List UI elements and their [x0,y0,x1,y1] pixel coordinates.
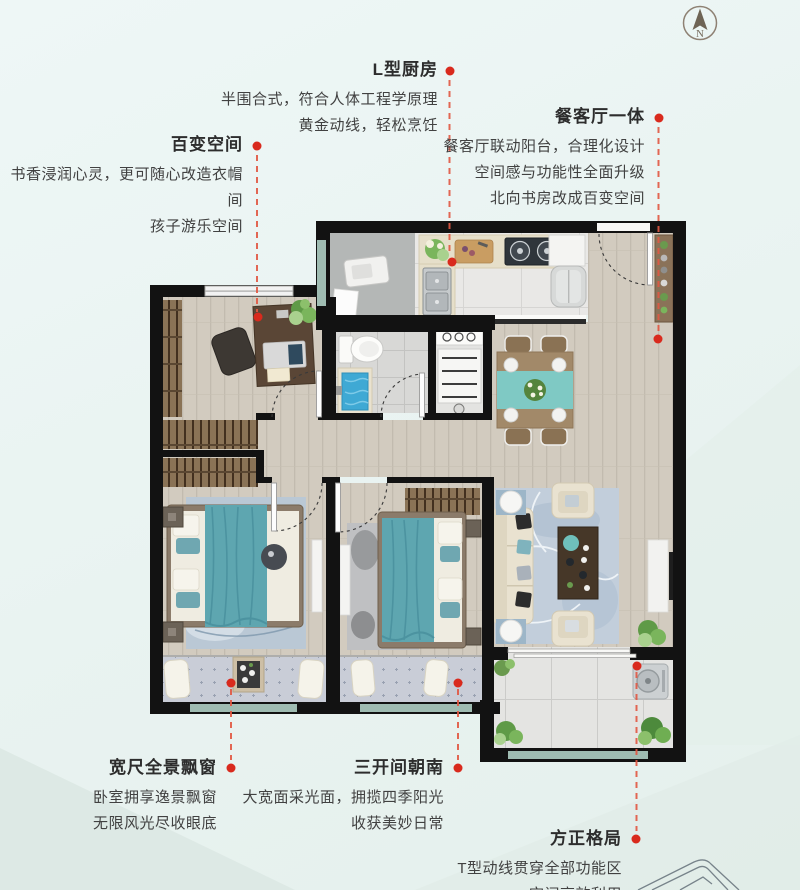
callout-flex-title: 百变空间 [0,133,243,157]
shower-head [336,386,342,395]
coffee-table [558,527,598,599]
entry-door-leaf [648,233,653,285]
dot-square-label [632,835,641,844]
callout-square-line: 空间高效利用 [457,882,622,890]
dot-flex-target [254,313,263,322]
study-door-leaf [317,371,322,417]
side-table [496,490,526,515]
decor-sketch [638,860,739,890]
nightstand [466,520,481,537]
bay2-sill [360,704,472,712]
cutting-board [455,240,493,263]
bedroom2-dresser [405,488,480,515]
sliding-door [514,654,636,658]
callout-square-layout: 方正格局 T型动线贯穿全部功能区 空间高效利用 [457,827,622,890]
bedroom2-tv-stand [340,545,350,615]
bed2 [378,512,466,648]
callout-kitchen-line: 黄金动线，轻松烹饪 [221,113,438,139]
callout-bay-title: 宽尺全景飘窗 [93,756,217,780]
kitchen-cabinet [549,235,585,266]
dot-south-label [454,764,463,773]
callout-kitchen-line: 半围合式，符合人体工程学原理 [221,87,438,113]
callout-dining-living: 餐客厅一体 餐客厅联动阳台，合理化设计 空间感与功能性全面升级 北向书房改成百变… [443,105,645,212]
sofa-pillow [515,591,532,608]
callout-south-rooms: 三开间朝南 大宽面采光面，拥揽四季阳光 收获美妙日常 [242,756,444,837]
dot-bay-label [227,764,236,773]
bedroom1-wardrobe [163,458,258,487]
bedroom1-door-leaf [272,483,277,531]
bay2-pillow [350,659,375,697]
bed1 [167,505,303,627]
bed2-blanket [382,518,434,642]
bedroom2-door-leaf [336,483,341,532]
callout-bay-window: 宽尺全景飘窗 卧室拥享逸景飘窗 无限风光尽收眼底 [93,756,217,837]
bookshelf-bottom [163,420,258,449]
paper [267,368,290,382]
balcony-sill [508,751,648,759]
bay1-sill [190,704,297,712]
bay1-pillow [297,659,324,699]
page: N L型厨房 半围合式，符合人体工程学原理 黄金动线，轻松烹饪 百变空间 书香浸… [0,0,800,890]
tv-screen [669,552,673,600]
sofa-pillow [516,539,531,554]
compass-arrow-icon [693,9,708,31]
tv-console [648,540,668,612]
callout-dining-line: 北向书房改成百变空间 [443,186,645,212]
callout-flex-line: 书香浸润心灵，更可随心改造衣帽间 [0,162,243,214]
sofa-pillow [515,513,532,530]
callout-kitchen-title: L型厨房 [221,58,438,82]
armchair [552,611,594,646]
bedroom1-tv-stand [312,540,322,612]
bed1-tray [261,544,287,570]
callout-square-title: 方正格局 [457,827,622,851]
dot-dining-target [654,335,663,344]
bathroom-door-leaf [420,373,425,417]
callout-bay-line: 无限风光尽收眼底 [93,811,217,837]
entry-door-opening [597,223,650,231]
callout-dining-title: 餐客厅一体 [443,105,645,129]
sofa-pillow [516,565,531,580]
mop-stand [454,404,464,414]
sofa [493,508,533,624]
callout-dining-line: 餐客厅联动阳台，合理化设计 [443,134,645,160]
shower [336,368,372,415]
callout-south-line: 收获美妙日常 [242,811,444,837]
callout-flex-space: 百变空间 书香浸润心灵，更可随心改造衣帽间 孩子游乐空间 [0,133,243,240]
nightstand [466,628,481,645]
callout-dining-line: 空间感与功能性全面升级 [443,160,645,186]
armchair [552,483,594,518]
compass-north-label: N [696,28,704,40]
bay2-pillow [423,659,449,697]
dot-south-target [454,679,463,688]
dot-kitchen-target [448,258,457,267]
dot-square-target [633,662,642,671]
callout-square-line: T型动线贯穿全部功能区 [457,856,622,882]
dot-dining-label [655,114,664,123]
washer [344,255,390,287]
kitchen-bar-edge [495,319,586,324]
callout-kitchen: L型厨房 半围合式，符合人体工程学原理 黄金动线，轻松烹饪 [221,58,438,139]
balcony-side-window [317,240,326,306]
kitchen-sink [423,268,451,315]
toilet [339,336,383,363]
bay1-tea-table [233,657,264,692]
dot-flex-label [253,142,262,151]
callout-south-title: 三开间朝南 [242,756,444,780]
bay1-pillow [163,659,190,699]
callout-flex-line: 孩子游乐空间 [0,214,243,240]
sliding-door [508,649,630,653]
dot-bay-target [227,679,236,688]
bookshelf-left [163,300,182,417]
callout-south-line: 大宽面采光面，拥揽四季阳光 [242,785,444,811]
callout-bay-line: 卧室拥享逸景飘窗 [93,785,217,811]
storage-counter [436,330,483,345]
side-table [496,619,526,644]
compass: N [684,7,717,41]
dot-kitchen-label [446,67,455,76]
fridge [551,266,586,307]
